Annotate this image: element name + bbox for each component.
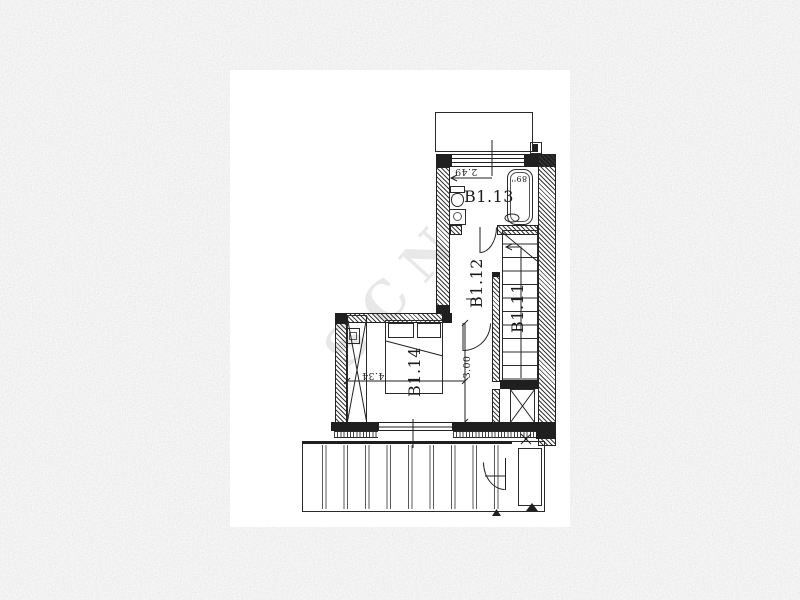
viewer-background: SCN 89'' B1.13 2.49 B1.12 B1.11: [0, 0, 800, 600]
terrace-door-jamb: [505, 458, 506, 490]
wall-corner-bottom-right: [536, 425, 556, 439]
wardrobe-device-inner: [349, 332, 357, 340]
terrace-edge-top: [302, 441, 512, 444]
bathroom-door-arc: [480, 227, 497, 253]
bedroom-depth-dimension: 3.00: [462, 350, 474, 384]
exterior-wall-right: [538, 154, 556, 446]
drain-dot: [525, 438, 528, 441]
exterior-wall-left: [436, 167, 450, 313]
stairs-label: B1.11: [509, 278, 527, 338]
wall-cap-corridor-left: [436, 305, 450, 313]
balcony-outline: [435, 112, 533, 152]
bathroom-width-dimension: 2.49: [452, 166, 480, 177]
sliding-door: [379, 422, 452, 431]
bathtub-size-label: 89'': [509, 174, 529, 184]
stair-wall-cap: [492, 272, 500, 277]
bathroom-window: [452, 158, 524, 163]
bedroom-door-arc: [463, 323, 491, 351]
chimney-fill: [533, 144, 538, 152]
bedroom-label: B1.14: [406, 342, 424, 402]
bottom-wall-left: [331, 422, 379, 431]
window-sill-left: [334, 431, 378, 438]
wall-corner-top-left: [436, 154, 452, 167]
bedroom-wall-top-cap-right: [442, 313, 452, 323]
stair-wall-left: [492, 272, 500, 382]
understair-shaft: [510, 389, 535, 423]
bathroom-label: B1.13: [458, 188, 520, 206]
stair-wall-bottom: [500, 380, 538, 389]
bedroom-wall-left: [335, 323, 347, 424]
floor-plan-page: SCN 89'' B1.13 2.49 B1.12 B1.11: [230, 70, 570, 527]
terrace-deck-boards: [305, 445, 508, 509]
terrace-step: [518, 448, 542, 506]
bedroom-width-dimension: 4.34: [358, 370, 388, 381]
understair-wall: [492, 389, 500, 425]
hallway-label: B1.12: [468, 253, 486, 313]
sink-basin: [453, 212, 462, 221]
window-sill-right: [453, 431, 540, 438]
bedroom-wall-top-cap-left: [335, 313, 347, 323]
bed-pillow-left: [388, 323, 414, 338]
bed-pillow-right: [417, 323, 441, 338]
bathroom-wall-bottom-left: [450, 225, 462, 235]
